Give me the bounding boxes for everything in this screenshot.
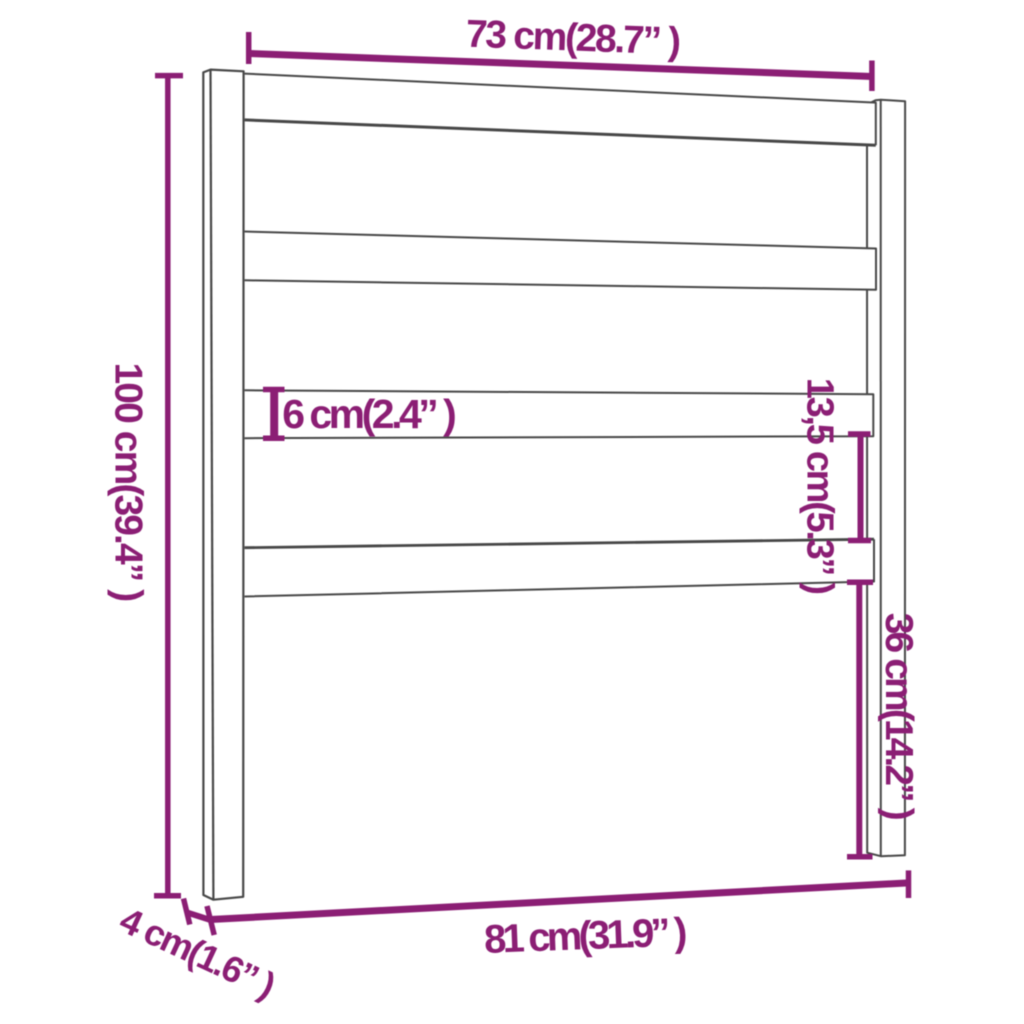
svg-text:13,5 cm(5.3” ): 13,5 cm(5.3” ) (799, 378, 841, 594)
svg-text:36 cm(14.2” ): 36 cm(14.2” ) (877, 613, 920, 820)
svg-text:6 cm(2.4” ): 6 cm(2.4” ) (282, 391, 455, 437)
svg-text:100 cm(39.4” ): 100 cm(39.4” ) (107, 363, 150, 602)
svg-text:73 cm(28.7” ): 73 cm(28.7” ) (465, 13, 681, 64)
svg-text:81 cm(31.9” ): 81 cm(31.9” ) (483, 910, 687, 962)
